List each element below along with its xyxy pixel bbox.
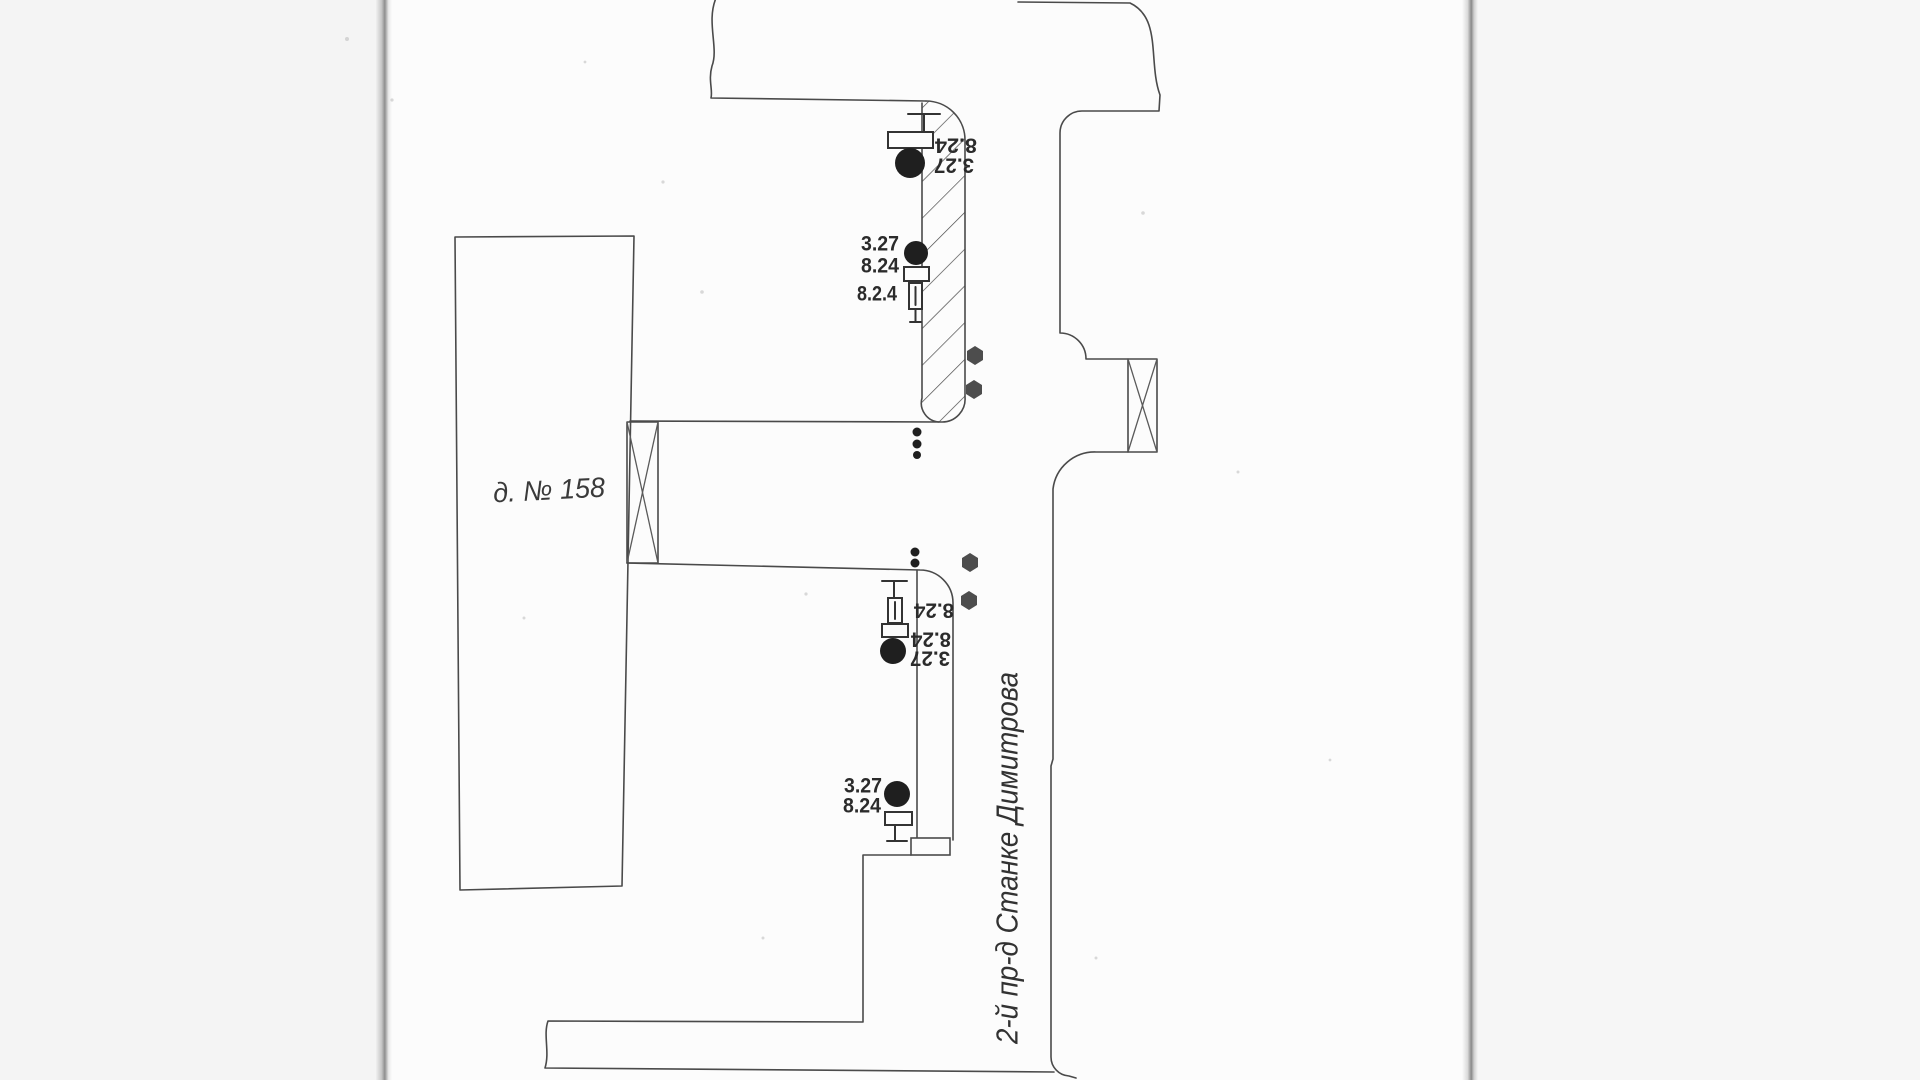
marker-circle [884, 781, 910, 807]
northeast-block-outline [1018, 2, 1160, 359]
scan-stage: 8.24 3.27 3.27 8.24 8.2.4 8. [0, 0, 1920, 1080]
marker-circle-value: 3.27 [861, 233, 899, 256]
marker-circle [895, 148, 925, 178]
hydrant-symbol [888, 598, 902, 623]
tee-symbol [882, 581, 907, 598]
street-crossbox [1128, 359, 1157, 452]
street-right-curb [1051, 452, 1128, 1078]
hydrant-symbol [909, 283, 922, 322]
tee-symbol-inverted [887, 825, 907, 841]
marker-rect [888, 132, 933, 148]
street-label: 2-й пр-д Станке Димитрова [990, 672, 1025, 1045]
building-label: д. № 158 [492, 472, 606, 509]
marker-circle [880, 638, 906, 664]
site-plan-drawing: 8.24 3.27 3.27 8.24 8.2.4 8. [0, 0, 1920, 1080]
building-158-outline [455, 236, 634, 890]
marker-group-bottom: 3.27 8.24 [843, 775, 912, 842]
marker-rect-value: 8.24 [861, 255, 899, 278]
survey-dots-upper [913, 428, 922, 460]
marker-rect-value: 8.24 [935, 134, 977, 157]
building-section-crossbox [627, 422, 658, 563]
marker-rect [882, 624, 908, 637]
marker-rect [885, 812, 912, 825]
marker-rect-value: 8.24 [843, 795, 881, 818]
marker-group-middle: 3.27 8.24 8.2.4 [857, 233, 929, 323]
marker-hydrant-value: 8.24 [914, 599, 954, 622]
marker-circle-value: 3.27 [934, 154, 974, 177]
north-building-outline [710, 0, 926, 101]
marker-circle-value: 3.27 [910, 647, 950, 670]
south-wing-porch [911, 838, 950, 855]
south-yard-boundary [545, 855, 1054, 1072]
marker-circle [904, 241, 928, 265]
survey-dots-lower [911, 548, 920, 568]
marker-hydrant-value: 8.2.4 [857, 283, 897, 306]
marker-rect [904, 267, 929, 281]
